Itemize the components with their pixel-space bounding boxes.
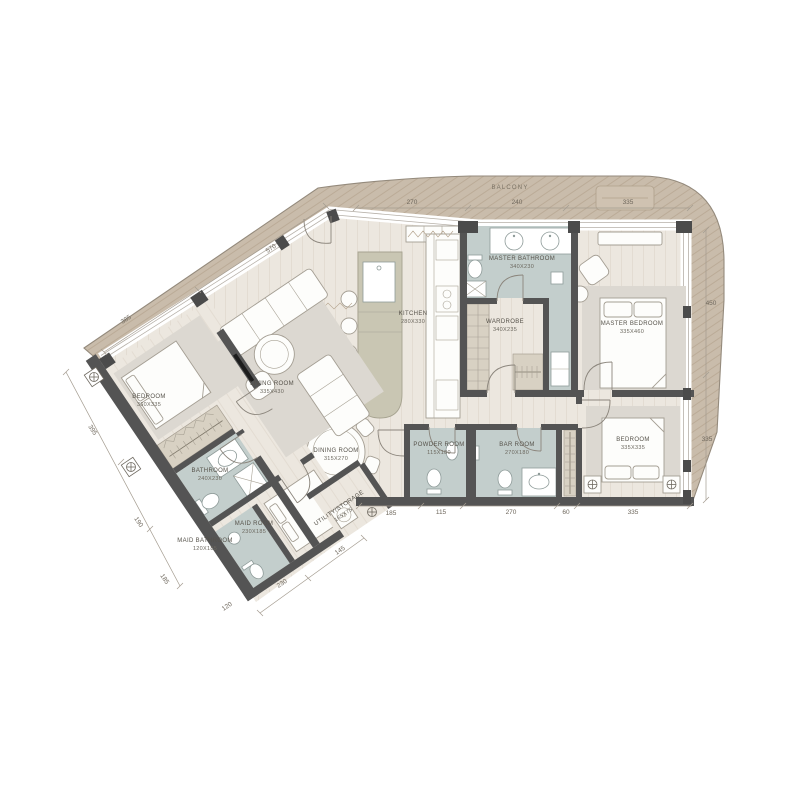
- toilet-tank: [468, 255, 482, 260]
- wall-298b: [523, 298, 549, 304]
- wall-298a: [467, 298, 497, 304]
- dim-bot-115: 115: [436, 509, 447, 516]
- label-master-bedroom-dims: 335X460: [620, 329, 644, 335]
- label-wardrobe: WARDROBE: [486, 319, 524, 325]
- label-maid-bathroom-dims: 120X185: [193, 546, 217, 552]
- closet-strip: [564, 430, 576, 496]
- label-wardrobe-dims: 340X235: [493, 327, 517, 333]
- balcony-label: BALCONY: [491, 185, 528, 191]
- label-bar-room-dims: 270X180: [505, 450, 529, 456]
- label-maid-room: MAID ROOM: [235, 521, 273, 527]
- wall-shower-div: [543, 298, 549, 393]
- wall-bath-right: [571, 226, 578, 396]
- dim-top-3: 335: [623, 199, 634, 206]
- window-pier: [458, 221, 478, 233]
- label-maid-room-dims: 230X185: [242, 529, 266, 535]
- pillow: [633, 466, 659, 479]
- label-master-bedroom: MASTER BEDROOM: [601, 321, 664, 327]
- wall-corr-c: [480, 424, 517, 430]
- label-bedroom-br: BEDROOM: [616, 437, 649, 443]
- socket-symbol: [588, 480, 597, 489]
- sink: [505, 232, 523, 250]
- wall-390a: [460, 390, 487, 397]
- wall-closet-bed-b: [576, 428, 582, 500]
- window-pier: [676, 221, 692, 233]
- dim-left-190: 190: [132, 516, 144, 529]
- label-living-room: LIVING ROOM: [250, 381, 294, 387]
- label-dining-room: DINING ROOM: [313, 448, 358, 454]
- label-kitchen-dims: 280X330: [401, 319, 425, 325]
- dim-left-395: 395: [86, 424, 98, 437]
- wall-corr-d: [541, 424, 578, 430]
- bar-sink: [529, 475, 549, 489]
- faucet: [377, 266, 381, 270]
- pillow: [605, 466, 631, 479]
- toilet: [468, 260, 482, 278]
- label-bathroom: BATHROOM: [191, 468, 228, 474]
- label-bar-room: BAR ROOM: [499, 442, 534, 448]
- wall-mbr-bottom-b: [612, 390, 694, 397]
- wall-closet-bed-a: [576, 396, 582, 404]
- bench: [598, 232, 662, 245]
- dim-wb-120: 120: [221, 601, 234, 613]
- label-living-room-dims: 335X430: [260, 389, 284, 395]
- wall-powder-bar: [466, 430, 476, 500]
- wall-bar-closet: [556, 430, 562, 500]
- label-bedroom-left: BEDROOM: [132, 394, 165, 400]
- sink: [541, 232, 559, 250]
- label-powder-room: POWDER ROOM: [413, 442, 464, 448]
- dim-bot-335: 335: [628, 509, 639, 516]
- toilet: [427, 469, 441, 487]
- dim-left-185: 185: [158, 573, 170, 586]
- socket-symbol: [667, 480, 676, 489]
- label-bedroom-left-dims: 360X335: [137, 402, 161, 408]
- label-bedroom-br-dims: 335X335: [621, 445, 645, 451]
- pillow: [604, 302, 632, 317]
- wall-mbr-bottom-a: [578, 390, 584, 397]
- window-pier: [568, 221, 580, 233]
- dim-right-1: 450: [706, 300, 717, 307]
- window-pier: [683, 388, 691, 400]
- label-master-bathroom: MASTER BATHROOM: [489, 256, 555, 262]
- window-pier: [683, 460, 691, 472]
- dim-bot-60: 60: [562, 509, 570, 516]
- dim-top-2: 240: [512, 199, 523, 206]
- socket-symbol: [121, 457, 140, 476]
- powder-room-floor: [410, 428, 466, 498]
- label-bathroom-dims: 240X230: [198, 476, 222, 482]
- wall-corr-b: [455, 424, 480, 430]
- label-master-bathroom-dims: 340X230: [510, 264, 534, 270]
- dim-right-2: 335: [702, 436, 713, 443]
- window-pier: [683, 306, 691, 318]
- stool: [341, 291, 357, 307]
- shower-bench: [551, 272, 563, 284]
- window-pier: [683, 490, 691, 504]
- double-vanity: [490, 228, 574, 254]
- dim-top-1: 270: [407, 199, 418, 206]
- socket-symbol: [368, 508, 377, 517]
- wall-powder-left: [404, 424, 410, 500]
- toilet-tank: [498, 490, 512, 495]
- toilet: [498, 470, 512, 488]
- pillow: [634, 302, 662, 317]
- kitchen-cabinets: [426, 234, 460, 418]
- label-maid-bathroom: MAID BATHROOM: [177, 538, 232, 544]
- wall-bath-left: [460, 226, 467, 396]
- label-powder-room-dims: 115X180: [427, 450, 451, 456]
- label-dining-room-dims: 315X270: [324, 456, 348, 462]
- toilet-tank: [427, 489, 441, 494]
- label-kitchen: KITCHEN: [399, 311, 428, 317]
- dim-bot-185: 185: [386, 510, 397, 517]
- floor-plan-canvas: BALCONY 270 240 335 450 335 570 385 395 …: [0, 0, 800, 800]
- dim-bot-270: 270: [506, 509, 517, 516]
